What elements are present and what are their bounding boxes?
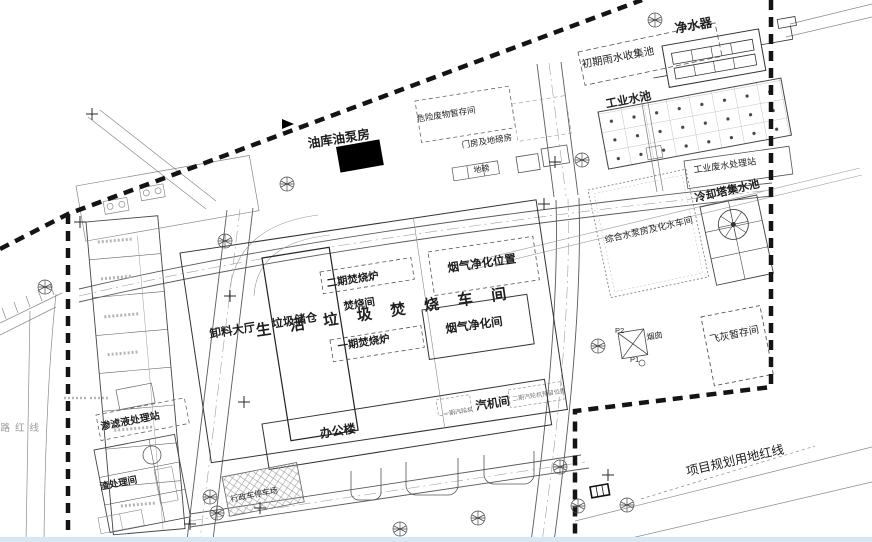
tree-icon — [571, 499, 585, 513]
site-boundary-red-line — [0, 0, 771, 542]
label-road-red-line: 道路红线 — [0, 424, 44, 434]
label-p1: P1 — [630, 356, 639, 364]
crosshair-icon — [86, 108, 98, 120]
leachate-upper-room — [116, 383, 155, 410]
bottom-edge-strip — [0, 537, 872, 542]
tree-icon — [553, 460, 567, 474]
tree-icon — [203, 490, 217, 504]
survey-point-p1 — [639, 360, 645, 366]
industrial-pool-grid — [598, 78, 791, 169]
tree-icon — [575, 153, 589, 167]
gatehouse-buildings — [515, 145, 569, 173]
tree-icon — [591, 339, 605, 353]
pipe-rack-lines — [470, 168, 862, 270]
crosshair-icon — [74, 216, 86, 228]
crosshair-icon — [224, 290, 236, 302]
oil-depot-yard — [76, 155, 259, 241]
tree-icon — [38, 280, 52, 294]
crosshair-icon — [538, 198, 550, 210]
crosshair-icon — [602, 469, 614, 481]
crosshair-icon — [184, 518, 196, 530]
tree-icon — [471, 511, 485, 525]
tree-icon — [210, 506, 224, 520]
tree-icon — [620, 498, 634, 512]
cooling-tower-structure — [700, 195, 773, 285]
site-plan-canvas: 净水器 初期雨水收集池 工业水池 工业废水处理站 冷却塔集水池 综合水泵房及化水… — [0, 0, 872, 542]
crosshair-icon — [549, 156, 561, 168]
fly-ash-storage-box — [701, 306, 773, 386]
tree-icon — [280, 177, 294, 191]
tree-icon — [393, 522, 407, 536]
gate-symbol — [590, 484, 610, 498]
bottom-room-row — [98, 510, 144, 534]
flow-arrow-marker — [282, 119, 294, 129]
crosshair-icon — [238, 396, 250, 408]
tree-icon — [218, 234, 232, 248]
label-p2: P2 — [615, 327, 624, 335]
tree-icon — [648, 13, 662, 27]
